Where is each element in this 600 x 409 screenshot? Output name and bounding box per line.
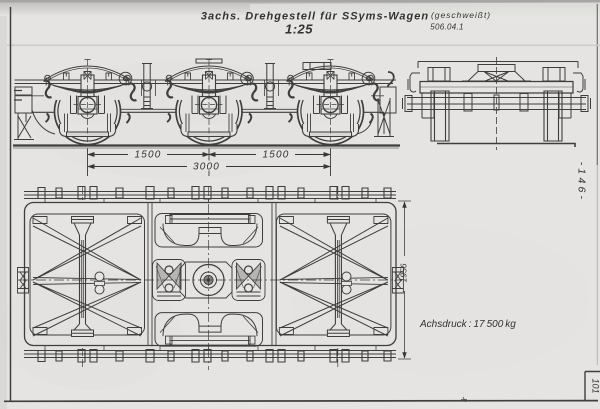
svg-text:1500: 1500 (134, 150, 161, 161)
svg-text:1956: 1956 (399, 263, 409, 282)
svg-text:1:25: 1:25 (285, 22, 313, 37)
svg-text:Achsdruck : 17 500 kg: Achsdruck : 17 500 kg (419, 319, 516, 330)
svg-text:(geschweißt): (geschweißt) (431, 10, 491, 20)
svg-text:3achs. Drehgestell für SSyms-W: 3achs. Drehgestell für SSyms-Wagen (201, 11, 429, 23)
svg-text:101: 101 (591, 378, 600, 393)
svg-text:506.04.1: 506.04.1 (430, 23, 464, 32)
svg-text:1500: 1500 (262, 150, 289, 161)
svg-text:-146-: -146- (576, 162, 588, 203)
svg-text:3000: 3000 (193, 162, 220, 173)
